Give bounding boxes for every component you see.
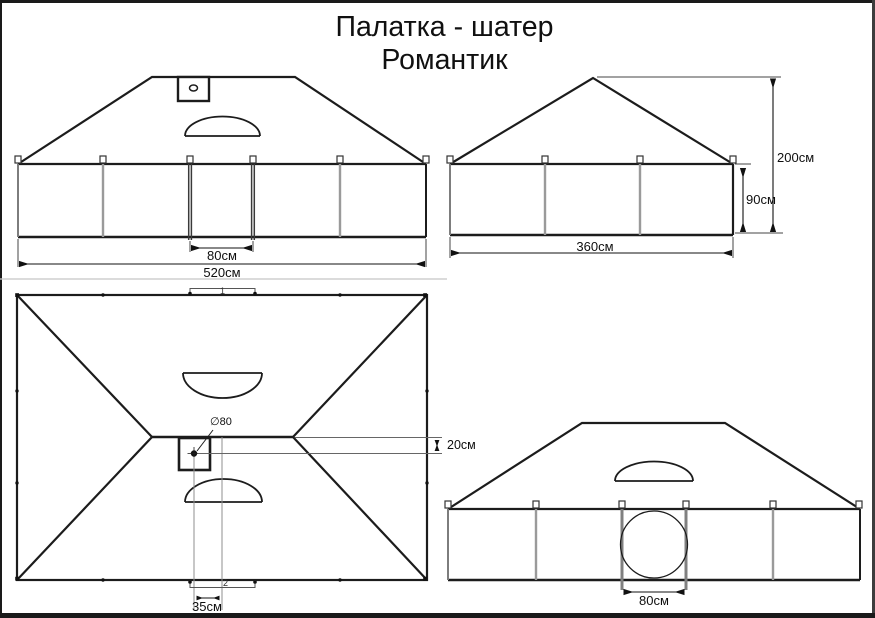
plan-axis-marker-top: 1 (217, 287, 228, 296)
front-view-drawing (15, 77, 429, 267)
plan-vent-upper (183, 373, 262, 398)
front-door-width-label: 80см (196, 249, 248, 263)
front-door-edges (189, 164, 255, 240)
front-tie-tabs (15, 156, 429, 163)
drawing-canvas (0, 0, 875, 618)
rear-round-window (621, 511, 688, 578)
front-roof-vent (185, 117, 260, 137)
side-view-drawing (447, 77, 783, 258)
plan-hole-offset-label: 35см (186, 600, 228, 614)
side-tie-tabs (447, 156, 736, 163)
front-chimney-flap (178, 77, 209, 101)
side-width-label: 360см (569, 240, 621, 254)
plan-view-drawing (15, 289, 442, 611)
side-wall-height-label: 90см (746, 193, 776, 207)
rear-tie-tabs (445, 501, 862, 508)
blueprint-page: Палатка - шатер Романтик (0, 0, 875, 618)
plan-axis-marker-bottom: 2 (220, 579, 231, 588)
rear-window-width-label: 80см (628, 594, 680, 608)
plan-hole-diameter-label: ∅80 (210, 417, 232, 429)
rear-view-drawing (445, 423, 862, 592)
plan-vent-lower (185, 479, 262, 502)
rear-roof-vent (615, 462, 693, 481)
side-total-height-label: 200см (777, 151, 814, 165)
front-total-width-label: 520см (196, 266, 248, 280)
plan-ridge-offset-label: 20см (447, 439, 476, 452)
